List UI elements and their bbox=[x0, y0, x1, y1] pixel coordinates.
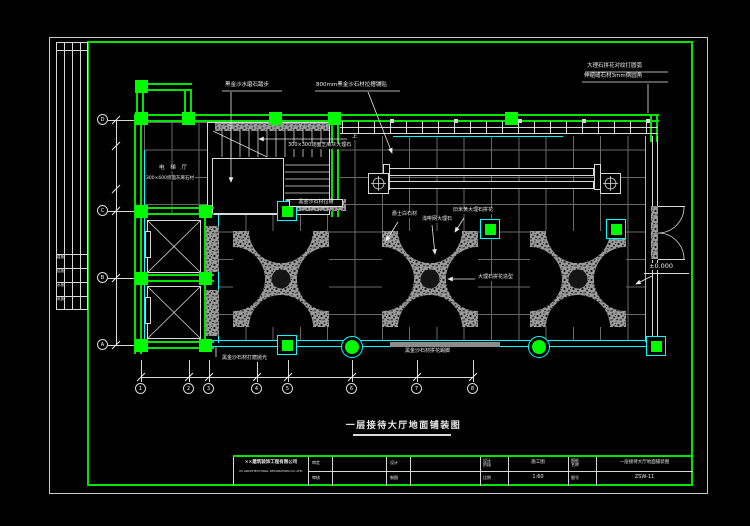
a-element bbox=[233, 457, 234, 486]
a-element bbox=[518, 119, 522, 123]
path-element bbox=[658, 233, 684, 259]
tb-label-sheji: 设计 bbox=[390, 461, 398, 465]
door-panel-hatch bbox=[651, 206, 658, 259]
a-element bbox=[582, 119, 586, 123]
stone-medallion bbox=[233, 231, 329, 327]
grid-bubble-col: 7 bbox=[411, 383, 422, 394]
grid-bubble-row: C bbox=[97, 205, 108, 216]
column bbox=[135, 272, 148, 285]
round-column bbox=[341, 336, 363, 358]
title-underline bbox=[353, 434, 451, 436]
elevator-cross bbox=[147, 220, 201, 339]
round-column bbox=[528, 336, 550, 358]
tb-drawing-name: 一层接待大厅地面铺装图 bbox=[598, 461, 691, 466]
b-element bbox=[611, 224, 622, 235]
note-coffee-stone: 浅啡网大理石 bbox=[421, 217, 453, 223]
line-element bbox=[112, 274, 120, 282]
note-medallion: 大理石拼花造型 bbox=[477, 275, 514, 281]
company-name-en: XX ARCHITECTURAL DECORATION CO.,LTD. bbox=[236, 470, 306, 473]
note-elevator-floor: 300×600烧面灰麻石材 bbox=[145, 176, 195, 181]
a-element bbox=[646, 119, 650, 123]
line-element bbox=[413, 373, 421, 381]
column-clad bbox=[277, 335, 297, 355]
line-element bbox=[284, 373, 292, 381]
granite-strip bbox=[206, 290, 219, 336]
line-element bbox=[455, 218, 464, 232]
line-element bbox=[112, 142, 120, 150]
note-polish: 黑金沙石材打磨抛光 bbox=[221, 356, 268, 362]
note-corner-1: 大理石拼花对纹打圆弧 bbox=[586, 63, 643, 69]
b-element bbox=[345, 340, 359, 354]
tb-label-scale: 比例 bbox=[483, 476, 491, 480]
drawing-title: 一层接待大厅地面铺装图 bbox=[330, 421, 477, 431]
tb-label-shending: 审定 bbox=[312, 461, 320, 465]
tb-label-name: 图纸名称 bbox=[571, 459, 581, 467]
grid-bubble-col: 5 bbox=[282, 383, 293, 394]
line-element bbox=[205, 373, 213, 381]
b-element bbox=[282, 206, 293, 217]
tb-label-no: 图号 bbox=[571, 476, 579, 480]
grid-bubble-col: 6 bbox=[346, 383, 357, 394]
note-groove: 黑金沙石材拉槽 bbox=[289, 199, 343, 207]
line-element bbox=[253, 373, 261, 381]
a-element bbox=[644, 273, 689, 274]
tb-label-shenhe: 审核 bbox=[312, 476, 320, 480]
column-clad bbox=[646, 336, 666, 356]
b-element bbox=[532, 340, 546, 354]
column bbox=[328, 112, 341, 125]
tb-scale-value: 1:60 bbox=[510, 475, 566, 480]
door-swing bbox=[658, 207, 684, 259]
path-element bbox=[658, 207, 684, 233]
column bbox=[135, 80, 148, 93]
line-element bbox=[636, 276, 652, 284]
line-element bbox=[469, 373, 477, 381]
a-element bbox=[454, 119, 458, 123]
level-mark: ±0.000 bbox=[648, 263, 674, 270]
granite-strip bbox=[206, 226, 219, 272]
a-element bbox=[308, 471, 693, 472]
column bbox=[182, 112, 195, 125]
tb-label-zhitu: 制图 bbox=[390, 476, 398, 480]
grid-bubble-col: 2 bbox=[183, 383, 194, 394]
line-element bbox=[112, 116, 120, 124]
crosshair-symbol bbox=[371, 176, 618, 191]
column bbox=[269, 112, 282, 125]
note-step: 黑金沙水磨石踏步 bbox=[224, 82, 270, 88]
grid-bubble-col: 8 bbox=[467, 383, 478, 394]
stone-medallion bbox=[530, 231, 626, 327]
column bbox=[135, 112, 148, 125]
cad-drawing-sheet: 建施 结施 水施 电施 bbox=[0, 0, 750, 526]
titleblock-top-border bbox=[233, 455, 693, 457]
grid-bubble-row: B bbox=[97, 272, 108, 283]
column bbox=[199, 272, 212, 285]
grid-bubble-row: D bbox=[97, 114, 108, 125]
column-clad bbox=[480, 219, 500, 239]
column bbox=[135, 339, 148, 352]
column bbox=[135, 205, 148, 218]
column-clad bbox=[606, 219, 626, 239]
company-name: ××建筑装饰工程有限公司 bbox=[236, 461, 306, 466]
line-element bbox=[112, 185, 120, 193]
tb-drawing-no: ZSW-11 bbox=[598, 475, 691, 480]
column bbox=[199, 205, 212, 218]
b-element bbox=[651, 341, 662, 352]
note-elevator-hall: 电 梯 厅 bbox=[158, 165, 190, 171]
grid-bubble-col: 1 bbox=[135, 383, 146, 394]
grid-bubble-col: 3 bbox=[203, 383, 214, 394]
column bbox=[199, 339, 212, 352]
note-white-stone: 爵士白石材 bbox=[391, 212, 418, 218]
tb-label-stage: 设计阶段 bbox=[483, 459, 493, 467]
note-skirt: 黑金沙石材拼花踢脚 bbox=[404, 349, 451, 355]
grid-bubble-row: A bbox=[97, 339, 108, 350]
line-element bbox=[185, 373, 193, 381]
tb-stage-value: 施工图 bbox=[510, 461, 566, 466]
note-base: 800mm黑金沙石材拉槽铺贴 bbox=[315, 82, 388, 88]
line-element bbox=[112, 341, 120, 349]
note-up: 上 bbox=[351, 134, 359, 140]
note-stair-stone: 300×300烧面芝麻灰大理石 bbox=[287, 143, 352, 149]
note-corner-2: 伸缩缝石材3mm倒圆角 bbox=[583, 73, 643, 79]
a-element bbox=[390, 119, 394, 123]
line-element bbox=[348, 373, 356, 381]
grid-bubble-col: 4 bbox=[251, 383, 262, 394]
b-element bbox=[282, 340, 293, 351]
line-element bbox=[137, 373, 145, 381]
b-element bbox=[485, 224, 496, 235]
note-beige-stone: 旧米黄大理石拼花 bbox=[452, 208, 494, 214]
line-element bbox=[112, 207, 120, 215]
